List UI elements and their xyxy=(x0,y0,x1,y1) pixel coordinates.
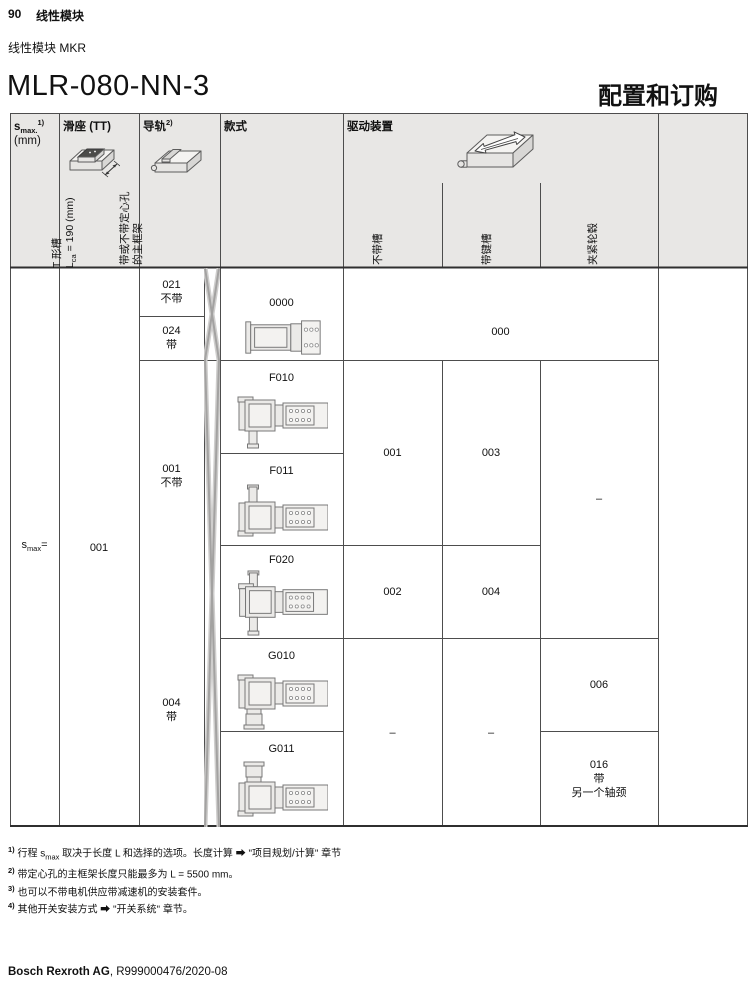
column-header-style: 款式 xyxy=(224,118,247,134)
style-0000-illustration xyxy=(243,315,321,360)
rail-note: 带或不带定心孔 的主框架 xyxy=(119,192,145,266)
smax-subscript: max. xyxy=(20,126,37,135)
footnote-4: 4) 其他开关安装方式 ➡ "开关系统" 章节。 xyxy=(8,899,341,917)
drive-code-f-keyway-cell: 003 xyxy=(442,360,540,545)
footer-company: Bosch Rexroth AG xyxy=(8,966,110,978)
style-G011-illustration xyxy=(236,760,328,824)
footnotes: 1) 行程 smax 取决于长度 L 和选择的选项。长度计算 ➡ "项目规划/计… xyxy=(8,843,341,917)
drive-code-base: 000 xyxy=(491,325,509,339)
style-option-F011: F011 xyxy=(220,453,343,545)
drive-sub-hub: 夹紧轮毂 xyxy=(587,223,600,265)
style-F020-illustration xyxy=(236,569,328,638)
rail-footnote-marker: 2) xyxy=(166,118,173,127)
drive-code-f-hub-cell: – xyxy=(540,360,658,638)
carriage-note: T 形槽 Lca = 190 (mm) xyxy=(51,197,80,268)
drive-code-g011-hub-cell: 016 带 另一个轴颈 xyxy=(540,731,658,827)
style-F011-illustration xyxy=(236,482,328,544)
carriage-icon xyxy=(66,129,120,183)
carriage-code-cell: 001 xyxy=(59,268,139,827)
smax-value-cell: smax= xyxy=(10,268,59,827)
style-option-F010: F010 xyxy=(220,360,343,453)
catalog-page: 90 线性模块 线性模块 MKR MLR-080-NN-3 配置和订购 xyxy=(0,0,750,992)
smax-unit: (mm) xyxy=(14,135,41,147)
drive-code-f020-noslot-cell: 002 xyxy=(343,545,442,638)
style-G010-illustration xyxy=(236,667,328,731)
rail-note-line2: 的主框架 xyxy=(132,192,145,266)
style-option-G010: G010 xyxy=(220,638,343,731)
product-line: 线性模块 MKR xyxy=(8,39,86,56)
footnote-1: 1) 行程 smax 取决于长度 L 和选择的选项。长度计算 ➡ "项目规划/计… xyxy=(8,843,341,864)
page-title: MLR-080-NN-3 xyxy=(7,70,210,103)
rail-option-024: 024带 xyxy=(139,316,204,360)
style-F010-illustration xyxy=(236,389,328,451)
footer-document-number: , R999000476/2020-08 xyxy=(110,966,228,978)
drive-code-g-noslot-cell: – xyxy=(343,638,442,827)
drive-code-g-keyway-cell: – xyxy=(442,638,540,827)
footnote-3: 3) 也可以不带电机供应带减速机的安装套件。 xyxy=(8,882,341,900)
drive-sub-keyway: 带键槽 xyxy=(481,234,494,266)
rail-option-004: 004带 xyxy=(139,592,204,827)
page-number: 90 xyxy=(8,7,21,21)
drive-code-base-cell: 000 xyxy=(343,268,658,360)
chapter-title: 线性模块 xyxy=(36,7,84,24)
column-header-drive: 驱动装置 xyxy=(347,118,393,134)
style-option-F020: F020 xyxy=(220,545,343,638)
style-option-G011: G011 xyxy=(220,731,343,827)
configuration-table: smax.1) (mm) 滑座 (TT) T 形槽 Lca = 190 (mm)… xyxy=(10,113,748,827)
column-header-smax: smax.1) (mm) xyxy=(14,118,44,147)
rail-option-021: 021不带 xyxy=(139,268,204,316)
drive-code-g010-hub-cell: 006 xyxy=(540,638,658,731)
smax-footnote-marker: 1) xyxy=(38,118,45,127)
drive-icon xyxy=(447,123,553,177)
rail-icon xyxy=(150,129,204,183)
rail-option-001: 001不带 xyxy=(139,360,204,592)
page-footer: Bosch Rexroth AG, R999000476/2020-08 xyxy=(8,966,227,978)
drive-sub-noslot: 不带槽 xyxy=(372,234,385,266)
rail-note-line1: 带或不带定心孔 xyxy=(119,192,132,266)
section-title: 配置和订购 xyxy=(598,76,718,111)
smax-value: smax= xyxy=(21,538,47,556)
carriage-code: 001 xyxy=(90,541,108,555)
carriage-note-line1: T 形槽 xyxy=(51,197,64,268)
combination-connector-top xyxy=(204,268,220,360)
style-option-0000: 0000 xyxy=(220,268,343,360)
drive-code-f-noslot-cell: 001 xyxy=(343,360,442,545)
combination-connector-bottom xyxy=(204,360,220,827)
footnote-2: 2) 带定心孔的主框架长度只能最多为 L = 5500 mm。 xyxy=(8,864,341,882)
carriage-note-line2: Lca = 190 (mm) xyxy=(64,197,80,268)
drive-code-f020-keyway-cell: 004 xyxy=(442,545,540,638)
